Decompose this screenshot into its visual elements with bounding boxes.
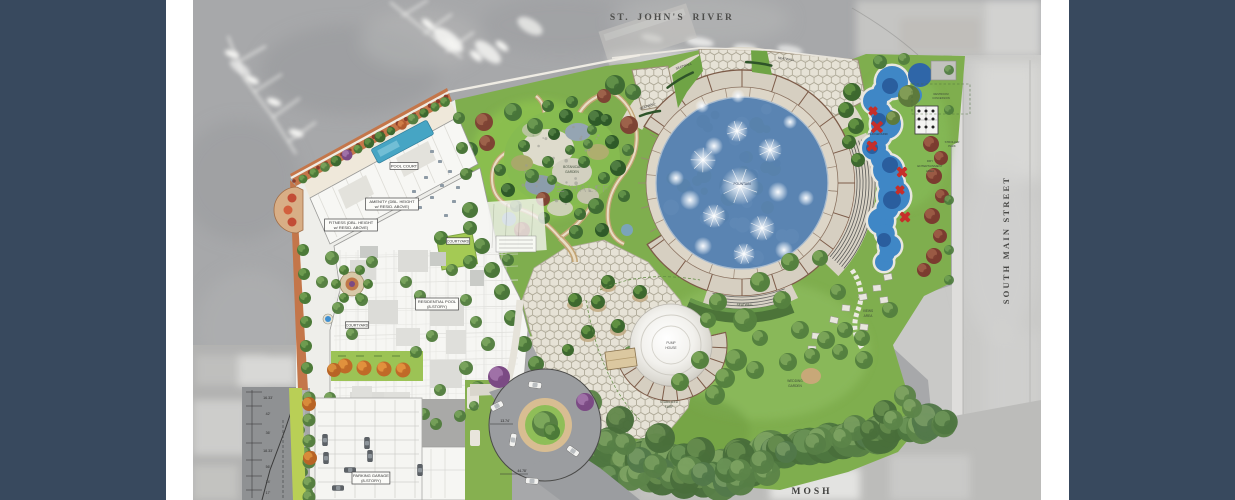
svg-text:36': 36'	[266, 431, 271, 435]
svg-text:44.78': 44.78'	[517, 469, 526, 473]
svg-text:VIEWS: VIEWS	[863, 309, 873, 313]
svg-text:PUMP: PUMP	[666, 341, 675, 345]
svg-text:STABILIZED: STABILIZED	[660, 400, 679, 404]
svg-text:16.33': 16.33'	[263, 396, 273, 400]
svg-text:MOSH: MOSH	[791, 487, 832, 497]
svg-text:BOTANICAL: BOTANICAL	[563, 165, 581, 169]
svg-text:14': 14'	[266, 480, 271, 484]
svg-text:ENTERTAINMENT: ENTERTAINMENT	[917, 164, 942, 168]
svg-text:17': 17'	[266, 491, 271, 495]
svg-text:w/ RESID. ABOVE): w/ RESID. ABOVE)	[334, 225, 369, 230]
svg-text:DRY: DRY	[927, 159, 933, 163]
svg-text:PARK: PARK	[948, 144, 956, 148]
svg-text:☰ HALFF: ☰ HALFF	[556, 184, 610, 195]
svg-text:WEDDING: WEDDING	[787, 379, 803, 383]
svg-text:SEATWALL: SEATWALL	[737, 303, 754, 307]
svg-text:w/ RESID. ABOVE): w/ RESID. ABOVE)	[375, 204, 410, 209]
svg-text:GARDEN: GARDEN	[565, 170, 579, 174]
svg-text:PLAYGROUND: PLAYGROUND	[868, 132, 887, 136]
svg-text:(8-STORY): (8-STORY)	[361, 478, 382, 483]
svg-text:COURTYARD: COURTYARD	[447, 239, 470, 243]
svg-text:ST. JOHN'S RIVER: ST. JOHN'S RIVER	[610, 13, 734, 23]
svg-text:SOUTH MAIN STREET: SOUTH MAIN STREET	[1001, 176, 1011, 305]
svg-text:CONCESSION: CONCESSION	[932, 96, 950, 100]
svg-text:HOUSE: HOUSE	[665, 346, 676, 350]
svg-text:18.33': 18.33'	[263, 449, 273, 453]
svg-text:AREA: AREA	[926, 169, 934, 173]
svg-text:RESTROOM: RESTROOM	[934, 92, 949, 96]
svg-text:POOL COURT: POOL COURT	[391, 164, 418, 169]
svg-text:13.74': 13.74'	[500, 419, 509, 423]
svg-text:56': 56'	[266, 465, 271, 469]
svg-text:AREA: AREA	[864, 314, 874, 318]
svg-text:FOUNTAIN: FOUNTAIN	[733, 182, 751, 186]
svg-text:GARDEN: GARDEN	[788, 384, 802, 388]
svg-text:TURF: TURF	[665, 405, 674, 409]
svg-text:COURTYARD: COURTYARD	[346, 323, 369, 327]
svg-text:42': 42'	[266, 412, 271, 416]
svg-text:(8-STORY): (8-STORY)	[427, 304, 448, 309]
